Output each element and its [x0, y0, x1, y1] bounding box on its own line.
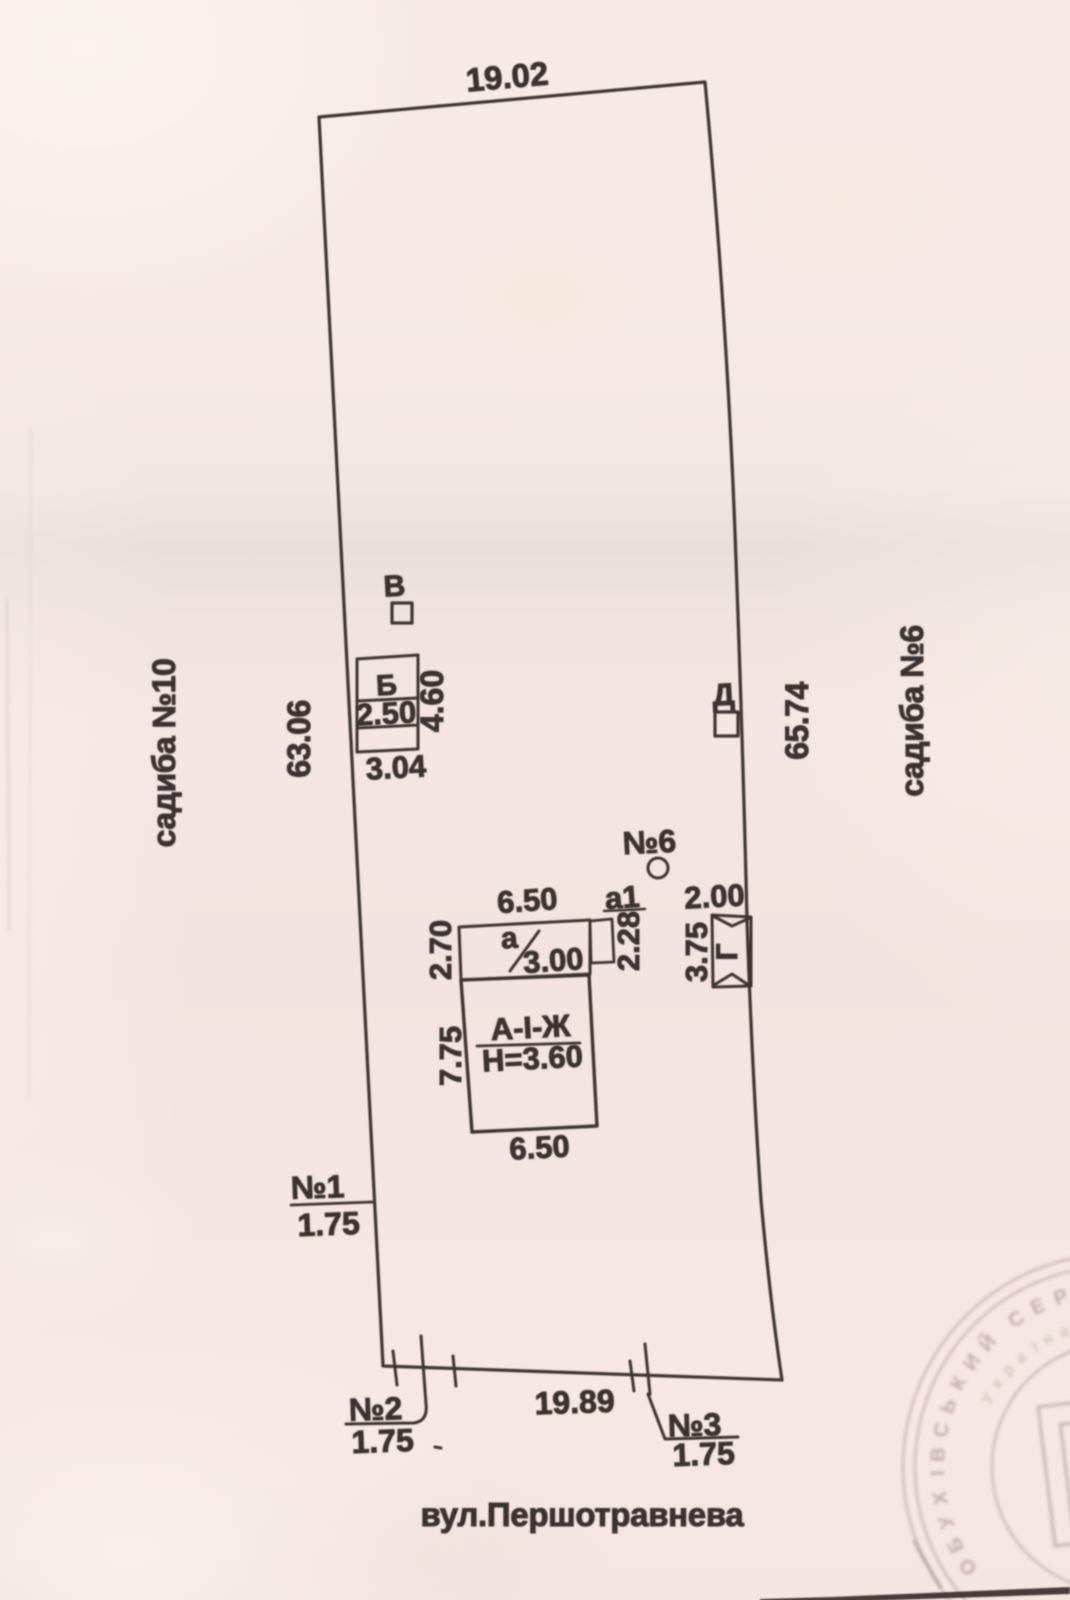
svg-text:2.28: 2.28: [611, 911, 646, 971]
svg-text:Д: Д: [712, 676, 736, 712]
svg-text:а: а: [1057, 1323, 1070, 1342]
svg-text:р: р: [999, 1361, 1018, 1380]
svg-text:1.75: 1.75: [351, 1422, 414, 1460]
svg-text:Б: Б: [943, 1534, 969, 1557]
svg-text:Н=3.60: Н=3.60: [481, 1038, 584, 1078]
svg-text:2.00: 2.00: [683, 877, 745, 915]
svg-text:І: І: [927, 1470, 949, 1476]
svg-text:№1: №1: [290, 1168, 345, 1206]
svg-text:а1: а1: [604, 879, 641, 916]
svg-text:19.02: 19.02: [464, 55, 550, 99]
svg-text:6.50: 6.50: [496, 881, 559, 920]
svg-text:вул.Першотравнева: вул.Першотравнева: [421, 1496, 745, 1533]
svg-text:3.75: 3.75: [679, 922, 714, 982]
svg-text:6.50: 6.50: [508, 1128, 570, 1166]
svg-text:И: И: [959, 1350, 985, 1375]
svg-text:У: У: [979, 1390, 999, 1408]
svg-text:2.70: 2.70: [423, 920, 458, 980]
svg-text:С: С: [1004, 1306, 1028, 1332]
svg-text:В: В: [383, 569, 406, 603]
svg-text:н: н: [1040, 1330, 1057, 1350]
svg-text:3.04: 3.04: [365, 748, 428, 786]
svg-text:а: а: [500, 921, 519, 955]
svg-text:Р: Р: [1051, 1285, 1070, 1310]
svg-text:№6: №6: [622, 823, 677, 862]
svg-text:2.50: 2.50: [355, 694, 417, 732]
svg-text:У: У: [934, 1512, 959, 1531]
svg-text:65.74: 65.74: [779, 682, 815, 760]
svg-text:О: О: [955, 1554, 982, 1579]
svg-text:С: С: [930, 1421, 955, 1440]
svg-text:63.06: 63.06: [281, 700, 317, 778]
svg-text:1.75: 1.75: [297, 1205, 360, 1243]
svg-text:Г: Г: [711, 943, 744, 960]
svg-text:К: К: [946, 1372, 972, 1394]
svg-text:Ь: Ь: [936, 1396, 962, 1417]
svg-text:Е: Е: [1027, 1294, 1049, 1320]
svg-text:садиба №6: садиба №6: [894, 625, 930, 796]
svg-text:3.00: 3.00: [522, 941, 585, 980]
svg-text:к: к: [988, 1375, 1007, 1392]
svg-text:7.75: 7.75: [433, 1026, 468, 1086]
svg-text:19.89: 19.89: [534, 1383, 615, 1422]
svg-text:Х: Х: [929, 1489, 953, 1507]
svg-text:Й: Й: [974, 1329, 1001, 1356]
svg-text:В: В: [927, 1447, 950, 1463]
svg-text:1.75: 1.75: [672, 1435, 735, 1473]
svg-text:садиба №10: садиба №10: [146, 659, 182, 848]
svg-text:а: а: [1012, 1349, 1030, 1368]
svg-text:ї: ї: [1028, 1339, 1042, 1356]
svg-text:4.60: 4.60: [414, 670, 450, 732]
